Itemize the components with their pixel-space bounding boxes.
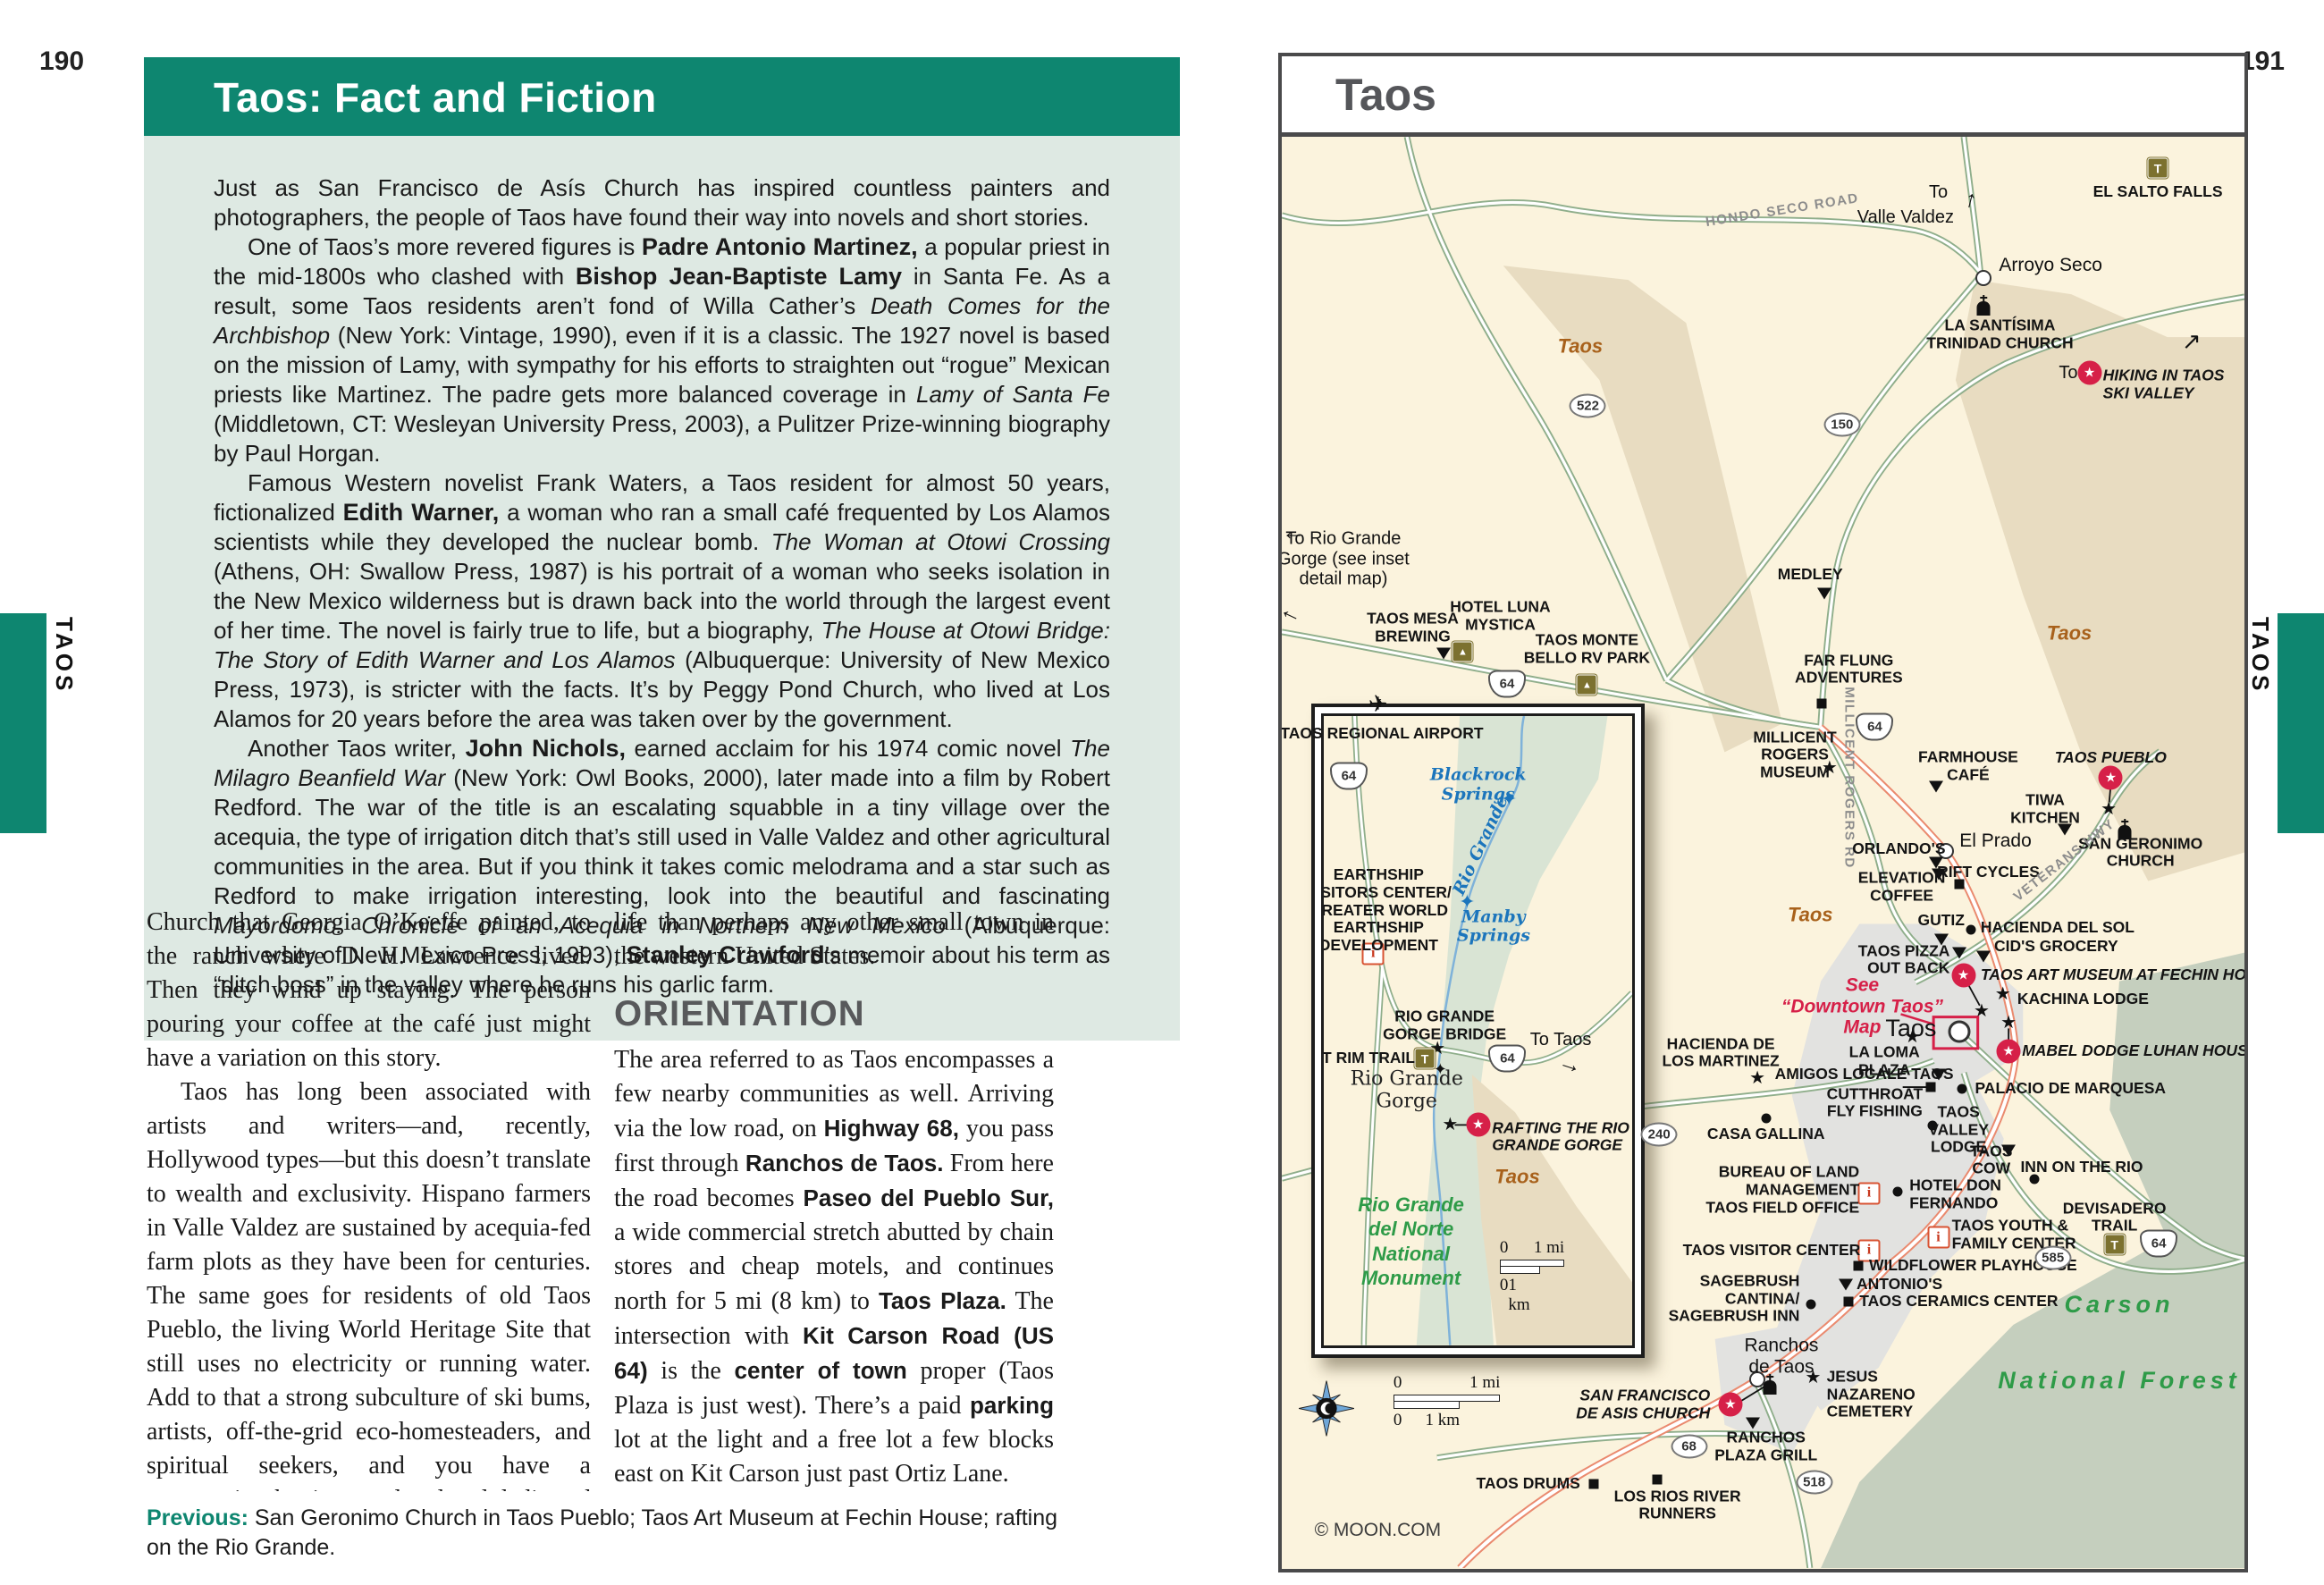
town-icon <box>1975 270 1991 286</box>
left-tab-label: TAOS <box>50 617 78 694</box>
townbig-icon <box>1949 1020 1971 1042</box>
caption-text: San Geronimo Church in Taos Pueblo; Taos… <box>147 1505 1057 1560</box>
paragraph: Church that Georgia O’Keeffe painted, to… <box>147 906 591 1075</box>
map-label: HACIENDA DEL SOL <box>1981 920 2135 938</box>
star-icon: ★ <box>1749 1069 1765 1087</box>
map-label: CID'S GROCERY <box>1994 938 2118 956</box>
dot-icon <box>1958 1083 1967 1093</box>
info-icon: i <box>1857 1182 1880 1204</box>
sq-icon <box>1925 1083 1935 1092</box>
map-label: SAN FRANCISCODE ASIS CHURCH <box>1576 1387 1710 1422</box>
map-label: To <box>1929 182 1948 202</box>
map-label: KACHINA LODGE <box>2017 991 2149 1009</box>
map-label: MEDLEY <box>1778 566 1843 584</box>
book-spread: 190 191 TAOS TAOS Taos: Fact and Fiction… <box>0 0 2324 1585</box>
plane-icon: ✈ <box>1368 692 1388 715</box>
tri-icon <box>1952 947 1966 958</box>
map-credit: © MOON.COM <box>1315 1521 1441 1542</box>
map-label: CASA GALLINA <box>1707 1126 1825 1143</box>
church-icon <box>1977 301 1991 316</box>
map-label: GUTIZ <box>1917 913 1965 931</box>
dot-icon <box>1806 1300 1816 1310</box>
redstar-icon: ★ <box>1951 964 1975 988</box>
orientation-heading: ORIENTATION <box>614 997 1054 1031</box>
map-label: CUTTHROATFLY FISHING <box>1827 1085 1924 1120</box>
map-label: Valle Valdez <box>1857 207 1954 226</box>
map-body: ✦i✦★T✦★★BlackrockSpringsRio GrandeEARTHS… <box>1282 137 2244 1568</box>
route-shield: 585 <box>2034 1245 2071 1269</box>
area-label: Taos <box>2047 622 2092 645</box>
redstar-icon: ★ <box>1997 1040 2021 1064</box>
compass-rose-icon <box>1299 1380 1354 1440</box>
map-label: HIKING IN TAOSSKI VALLEY <box>2103 367 2225 401</box>
map-label: TAOSCOW <box>1970 1142 2012 1177</box>
map-label: TAOS MESABREWING <box>1367 611 1459 645</box>
map-label: TAOS PUEBLO <box>2055 749 2167 767</box>
map-label: HOTEL LUNAMYSTICA <box>1450 599 1550 634</box>
map-label: ANTONIO'S <box>1857 1276 1942 1294</box>
paragraph: life than perhaps any other small town i… <box>614 906 1054 974</box>
tri-icon <box>1436 647 1451 659</box>
star-icon: ★ <box>1974 1002 1990 1020</box>
map-label: Taos <box>1885 1015 1936 1041</box>
trail-icon: T <box>2104 1235 2125 1255</box>
scale-bar: 01 mi01 km <box>1394 1373 1501 1432</box>
map-label: INN ON THE RIO <box>2020 1159 2143 1176</box>
paragraph: One of Taos’s more revered figures is Pa… <box>214 232 1110 468</box>
map-header: Taos <box>1282 56 2244 137</box>
route-shield: 518 <box>1796 1470 1832 1494</box>
map-label: National Forest <box>1998 1367 2241 1394</box>
sidebar-title: Taos: Fact and Fiction <box>144 57 1180 136</box>
body-column-left: Church that Georgia O’Keeffe painted, to… <box>147 906 591 1491</box>
tri-icon <box>1976 951 1991 963</box>
star-icon: ★ <box>1995 985 2011 1003</box>
caption-label: Previous: <box>147 1505 248 1530</box>
map-label: TAOS VISITOR CENTER <box>1683 1242 1861 1260</box>
map-frame: Taos <box>1278 53 2248 1572</box>
right-tab-label: TAOS <box>2246 617 2274 694</box>
paragraph: Famous Western novelist Frank Waters, a … <box>214 468 1110 734</box>
dot-icon <box>1761 1114 1771 1124</box>
sq-icon <box>1844 1297 1854 1307</box>
map-label: TIWAKITCHEN <box>2010 792 2080 827</box>
map-label: TAOS ART MUSEUM AT FECHIN HOUSE <box>1981 966 2244 984</box>
map-label: HACIENDA DELOS MARTINEZ <box>1662 1035 1779 1070</box>
redstar-icon: ★ <box>2099 766 2123 790</box>
star-icon: ★ <box>2000 1014 2017 1032</box>
right-edge-tab <box>2278 613 2324 833</box>
camp-icon: ▲ <box>1577 675 1597 696</box>
map-label: AMIGOS LOCALE TAOS <box>1775 1066 1954 1083</box>
map-label: TAOS PIZZAOUT BACK <box>1858 942 1950 977</box>
route-shield: 150 <box>1823 412 1860 436</box>
map-label: Ranchosde Taos <box>1745 1336 1819 1378</box>
map-label: Arroyo Seco <box>1999 255 2102 276</box>
map-title: Taos <box>1282 56 2244 121</box>
paragraph: Taos has long been associated with artis… <box>147 1075 591 1491</box>
map-label: FARMHOUSECAFÉ <box>1918 749 2018 784</box>
body-column-right: life than perhaps any other small town i… <box>614 906 1054 1491</box>
map-label: HOTEL DONFERNANDO <box>1909 1177 2001 1212</box>
sq-icon <box>1588 1479 1598 1488</box>
dot-icon <box>1893 1186 1903 1196</box>
map-label: MILLICENTROGERSMUSEUM <box>1753 729 1836 781</box>
dot-icon <box>1966 924 1976 934</box>
route-shield: 522 <box>1570 393 1606 417</box>
map-label: JESUSNAZARENOCEMETERY <box>1827 1369 1916 1421</box>
redstar-icon: ★ <box>1718 1393 1742 1417</box>
map-label: RANCHOSPLAZA GRILL <box>1714 1429 1817 1463</box>
photo-caption: Previous: San Geronimo Church in Taos Pu… <box>147 1504 1058 1563</box>
trail-icon: T <box>2148 158 2168 179</box>
map-label: LA SANTÍSIMATRINIDAD CHURCH <box>1926 316 2073 351</box>
info-icon: i <box>1927 1227 1949 1249</box>
map-label: RIFT CYCLES <box>1937 864 2040 881</box>
direction-arrow-icon: ↗ <box>2182 328 2202 354</box>
map-label: El Prado <box>1959 830 2032 852</box>
map-label: TAOS MONTEBELLO RV PARK <box>1524 632 1650 667</box>
sq-icon <box>1854 1261 1864 1271</box>
map-label: EL SALTO FALLS <box>2093 184 2223 202</box>
area-label: Taos <box>1558 336 1604 358</box>
map-label: ORLANDO'S <box>1852 841 1945 859</box>
map-label: ELEVATIONCOFFEE <box>1858 869 1946 904</box>
map-label: TAOS REGIONAL AIRPORT <box>1282 725 1484 743</box>
map-label: To <box>2059 363 2077 383</box>
redstar-icon: ★ <box>2077 361 2101 385</box>
route-shield: 240 <box>1641 1122 1678 1146</box>
page-number-left: 190 <box>39 46 84 77</box>
direction-arrow-icon: ← <box>1282 518 1305 544</box>
paragraph: The area referred to as Taos encompasses… <box>614 1043 1054 1491</box>
map-label: BUREAU OF LANDMANAGEMENTTAOS FIELD OFFIC… <box>1705 1164 1859 1217</box>
map-label: LOS RIOS RIVERRUNNERS <box>1614 1488 1741 1522</box>
map-label: SAGEBRUSHCANTINA/SAGEBRUSH INN <box>1669 1273 1800 1326</box>
church-icon <box>1764 1380 1777 1395</box>
map-label: Carson <box>2064 1291 2174 1318</box>
tri-icon <box>1839 1279 1853 1291</box>
paragraph: Just as San Francisco de Asís Church has… <box>214 173 1110 232</box>
map-label: FAR FLUNGADVENTURES <box>1795 652 1903 687</box>
map-label: TAOS DRUMS <box>1477 1475 1580 1493</box>
map-label: MABEL DODGE LUHAN HOUSE <box>2022 1042 2244 1060</box>
area-label: Taos <box>1788 905 1833 927</box>
tri-icon <box>1817 587 1831 599</box>
left-edge-tab <box>0 613 46 833</box>
sidebar-box: Taos: Fact and Fiction Just as San Franc… <box>144 57 1180 1041</box>
sq-icon <box>1817 698 1827 708</box>
route-shield: 68 <box>1671 1434 1707 1458</box>
sq-icon <box>1653 1474 1663 1484</box>
map-label: PALACIO DE MARQUESA <box>1975 1080 2166 1098</box>
map-label: TAOS CERAMICS CENTER <box>1859 1293 2058 1311</box>
